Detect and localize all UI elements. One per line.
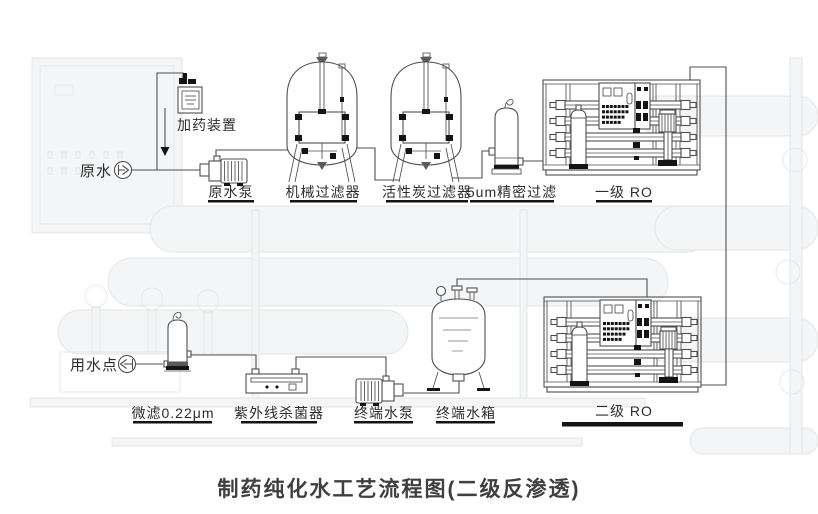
first-stage-ro-skid-icon	[543, 80, 700, 175]
second-stage-ro-skid-icon	[544, 297, 701, 392]
raw-water-pump-label: 原水泵	[209, 184, 254, 200]
diagram-title: 制药纯化水工艺流程图(二级反渗透)	[218, 477, 581, 501]
carbon-filter-label: 活性炭过滤器	[382, 184, 472, 200]
second-stage-ro-label: 二级 RO	[595, 403, 653, 419]
mechanical-filter-icon	[287, 53, 357, 182]
dosing-device-label: 加药装置	[177, 117, 237, 133]
raw-water-pump-icon	[200, 156, 247, 186]
mechanical-filter-label: 机械过滤器	[286, 184, 361, 200]
raw-water-inlet-icon	[115, 162, 132, 179]
terminal-tank-label: 终端水箱	[436, 405, 496, 421]
precision-filter-icon	[489, 99, 523, 174]
water-use-point-label: 用水点	[70, 357, 118, 374]
raw-water-label: 原水	[80, 163, 112, 180]
uv-sterilizer-label: 紫外线杀菌器	[234, 405, 324, 421]
first-stage-ro-label: 一级 RO	[595, 184, 653, 200]
dosing-device-icon	[178, 73, 202, 113]
carbon-filter-icon	[391, 53, 461, 182]
terminal-pump-label: 终端水泵	[354, 405, 414, 421]
water-use-point-icon	[119, 356, 136, 373]
diagram-canvas: 原水 加药装置 原水泵 机械过滤器 活性炭过滤器 5um精密过滤 一级 RO 微…	[0, 0, 818, 514]
microfilter-label: 微滤0.22μm	[132, 405, 215, 421]
process-flow-diagram: 原水 加药装置 原水泵 机械过滤器 活性炭过滤器 5um精密过滤 一级 RO 微…	[0, 0, 818, 514]
precision-filter-label: 5um精密过滤	[467, 184, 557, 200]
uv-sterilizer-icon	[246, 369, 307, 393]
